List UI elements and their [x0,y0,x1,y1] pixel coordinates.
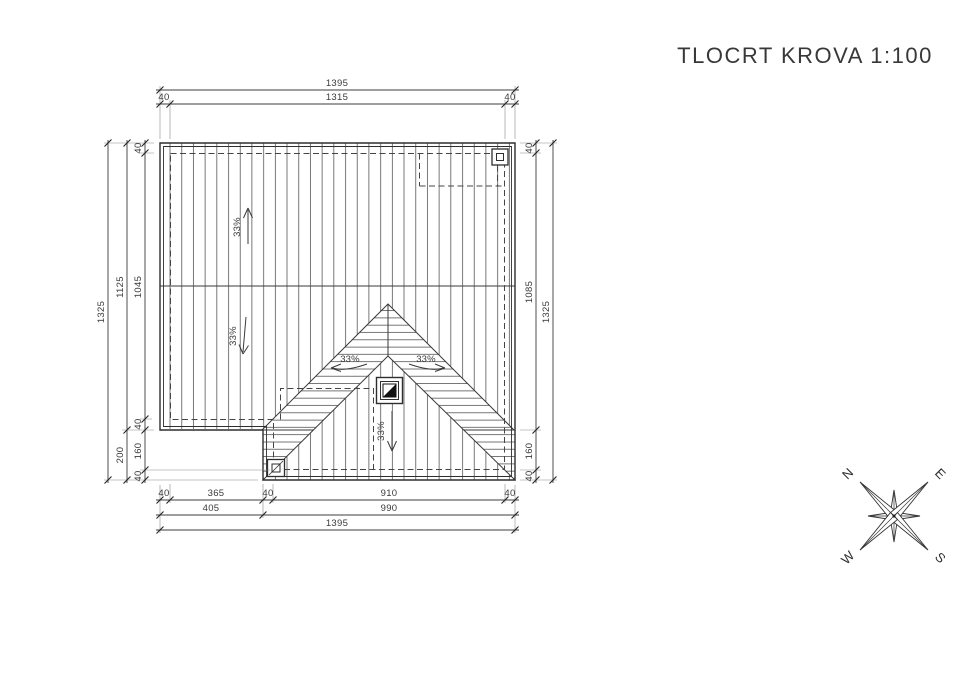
dim-right-total: 1325 [541,301,552,323]
dim-bottom-right-total: 990 [381,503,398,514]
dim-left-extension: 200 [115,447,126,464]
dim-top-total: 1395 [326,78,348,89]
dim-left-eave-top: 40 [133,142,144,153]
chimney-top-right [492,149,508,165]
dim-right-inner: 1085 [524,281,535,303]
compass-rose-icon [860,482,928,550]
dim-bottom-eave-left: 40 [158,488,169,499]
slope-label-east: 33% [416,354,436,365]
chimney-bottom-left [268,460,285,477]
roof-window-icon [377,378,403,404]
top-dimensions: 1395 40 1315 40 [156,78,519,108]
dim-bottom-left: 365 [208,488,225,499]
dim-bottom-eave-mid: 40 [262,488,273,499]
dim-bottom-left-total: 405 [203,503,220,514]
compass-label-south: S [932,549,949,566]
slope-label-center: 33% [376,421,387,441]
slope-label-west: 33% [340,354,360,365]
dim-right-eave-top: 40 [524,142,535,153]
dim-left-inner-ext: 160 [133,443,144,460]
roof-plan-drawing: TLOCRT KROVA 1:100 [0,0,960,690]
slope-label-north: 33% [232,217,243,237]
dim-bottom-right: 910 [381,488,398,499]
dim-bottom-eave-right: 40 [504,488,515,499]
dim-top-eave-right: 40 [504,92,515,103]
slope-label-south: 33% [228,326,239,346]
dim-bottom-total: 1395 [326,518,348,529]
compass-label-north: N [839,465,856,482]
dim-top-eave-left: 40 [158,92,169,103]
dim-top-inner: 1315 [326,92,348,103]
dim-left-eave-mid: 40 [133,418,144,429]
bottom-dimensions: 40 365 40 910 40 405 990 1395 [156,488,519,534]
page-title: TLOCRT KROVA 1:100 [677,43,933,68]
dim-left-eave-bottom: 40 [133,470,144,481]
dim-left-main: 1125 [115,276,126,298]
compass-label-west: W [838,547,858,567]
left-dimensions: 1325 1125 200 40 1045 40 160 40 [96,140,149,484]
roof-body: 33% 33% 33% 33% 33% [160,143,515,480]
right-dimensions: 40 1085 160 40 1325 [524,140,557,484]
dim-left-inner: 1045 [133,276,144,298]
compass-label-east: E [932,465,949,482]
dim-left-total: 1325 [96,301,107,323]
dim-right-inner-ext: 160 [524,443,535,460]
dim-right-eave-bottom: 40 [524,470,535,481]
